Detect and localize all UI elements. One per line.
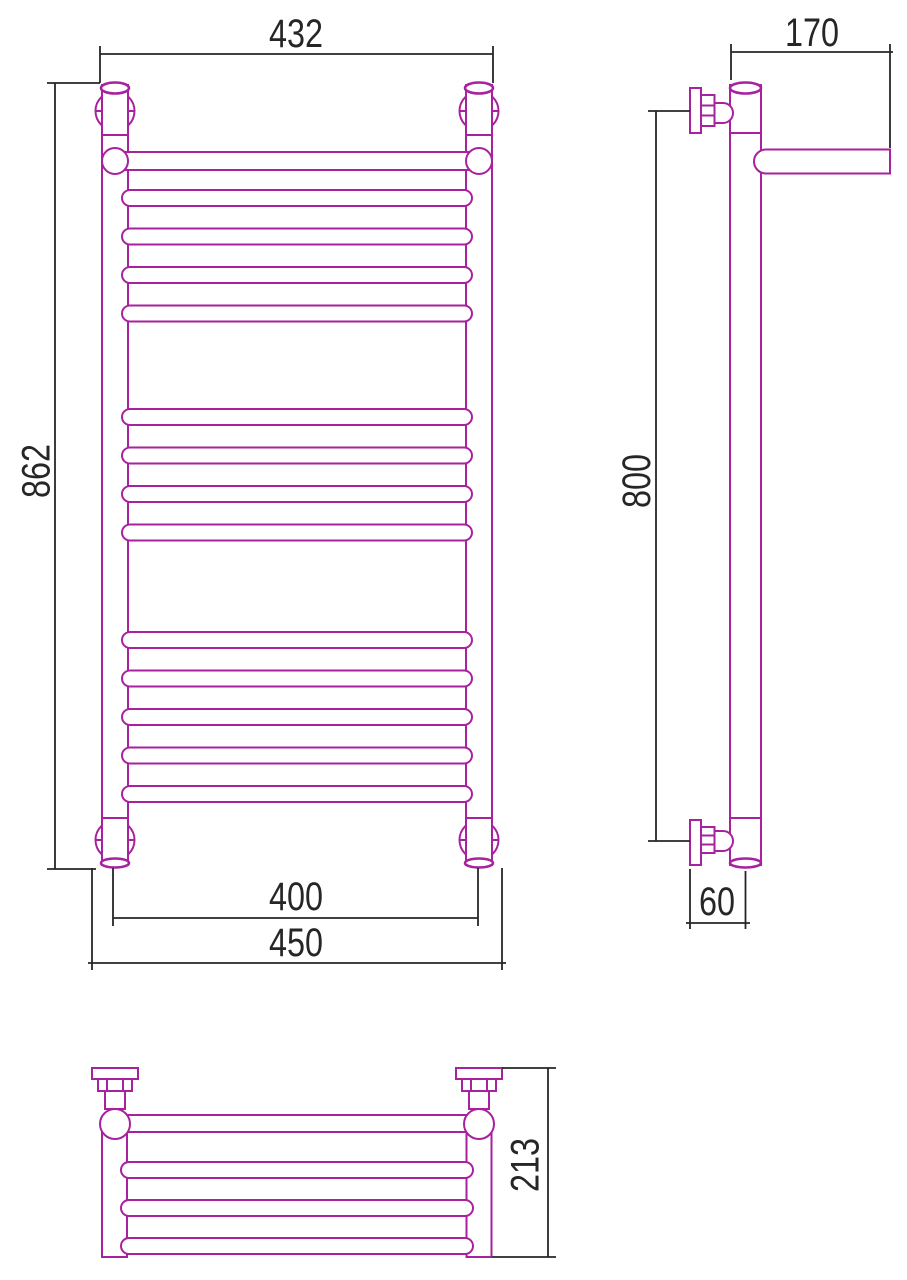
dim-label-depth: 170: [785, 11, 839, 55]
towel-rung: [122, 709, 472, 725]
dim-mount-height: 800: [615, 111, 690, 841]
pipe-cap: [101, 859, 129, 868]
towel-rung: [122, 786, 472, 802]
bar-boss: [466, 148, 492, 174]
dim-label-wall-offset: 60: [699, 880, 735, 924]
wall-bracket-left: [92, 1068, 138, 1109]
dim-center-distance: 400: [113, 868, 478, 926]
pipe-side: [730, 85, 761, 865]
dim-label-height: 862: [15, 444, 59, 498]
dim-label-center-distance: 400: [269, 875, 323, 919]
towel-rung: [122, 525, 472, 541]
side-view: [690, 83, 890, 868]
shelf-front-bar: [115, 1115, 479, 1132]
shelf-arm-right: [467, 1124, 492, 1257]
shelf-arm: [754, 150, 890, 174]
pipe-cap: [730, 83, 761, 94]
pipe-cap: [101, 83, 129, 94]
technical-drawing-canvas: 432 862 400 450 170: [0, 0, 907, 1280]
bracket-stem: [105, 1091, 125, 1109]
dim-label-top-width: 432: [269, 12, 323, 56]
wall-bracket-bottom: [690, 820, 733, 865]
pipe-cap: [730, 859, 761, 868]
shelf-rungs: [121, 1162, 473, 1254]
towel-rung: [122, 267, 472, 283]
towel-rung: [122, 632, 472, 648]
dim-shelf-depth: 213: [492, 1068, 556, 1257]
pipe-cap: [465, 859, 493, 868]
bracket-stem: [714, 103, 733, 123]
bar-boss: [102, 148, 128, 174]
dim-label-overall-width: 450: [269, 921, 323, 965]
towel-rung: [122, 306, 472, 322]
dim-top-width: 432: [100, 12, 493, 83]
towel-rung: [122, 409, 472, 425]
bracket-stem: [714, 831, 733, 851]
hex-nut: [701, 827, 715, 853]
shelf-rung: [121, 1238, 473, 1254]
hex-nut: [701, 95, 715, 126]
shelf-rung: [121, 1162, 473, 1178]
dim-height: 862: [15, 83, 101, 869]
bracket-stem: [469, 1091, 489, 1109]
riser-circle: [464, 1109, 494, 1139]
bracket-flange: [92, 1068, 138, 1079]
towel-rail-drawing: 432 862 400 450 170: [0, 0, 907, 1280]
bracket-flange: [690, 88, 701, 133]
pipe-cap: [465, 83, 493, 94]
bracket-flange: [690, 820, 701, 865]
wall-bracket-right: [456, 1068, 502, 1109]
riser-circle: [100, 1109, 130, 1139]
dim-wall-offset: 60: [686, 869, 750, 929]
shelf-rung: [121, 1200, 473, 1216]
front-rungs: [122, 190, 472, 802]
towel-rung: [122, 748, 472, 764]
hex-nut: [462, 1079, 496, 1091]
dim-label-shelf-depth: 213: [504, 1138, 548, 1192]
bracket-flange: [456, 1068, 502, 1079]
top-view: [92, 1068, 502, 1257]
dim-label-mount-height: 800: [615, 454, 659, 508]
shelf-arm-left: [102, 1124, 127, 1257]
towel-rung: [122, 448, 472, 464]
towel-rung: [122, 671, 472, 687]
towel-rung: [122, 486, 472, 502]
collar-ticks: [97, 111, 499, 840]
wall-bracket-top: [690, 88, 733, 133]
shelf-front-bar: [115, 152, 479, 170]
front-view: [96, 83, 499, 868]
towel-rung: [122, 229, 472, 245]
towel-rung: [122, 190, 472, 206]
hex-nut: [98, 1079, 132, 1091]
